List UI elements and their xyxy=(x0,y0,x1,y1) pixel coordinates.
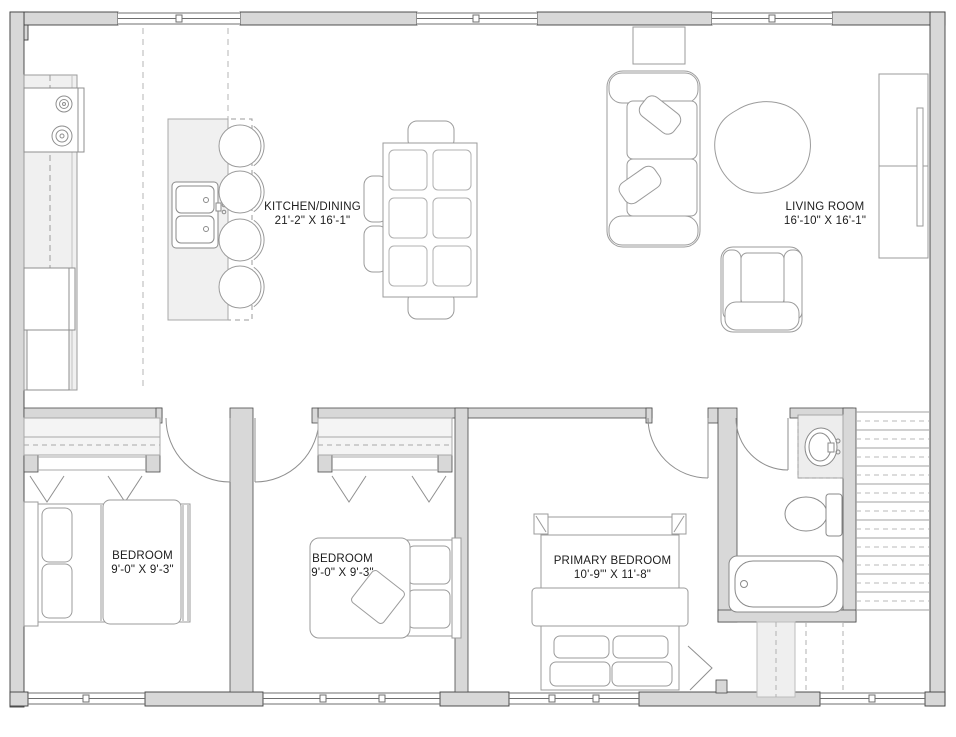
ottoman-icon xyxy=(715,102,811,193)
room-dimensions: 10'-9"' X 11'-8" xyxy=(535,568,690,582)
bathtub-icon xyxy=(729,556,843,612)
bathroom-door xyxy=(736,418,788,470)
toilet-icon xyxy=(785,494,842,536)
bedroom-2-door xyxy=(255,418,319,482)
room-dimensions: 21'-2" X 16'-1" xyxy=(240,214,385,228)
dining-table-icon xyxy=(383,143,477,297)
door-swings xyxy=(166,418,788,690)
floorplan-page: KITCHEN/DINING 21'-2" X 16'-1" LIVING RO… xyxy=(0,0,956,737)
primary-bedroom-door xyxy=(648,418,708,478)
armchair-icon xyxy=(721,247,802,332)
room-name: KITCHEN/DINING xyxy=(240,200,385,214)
room-name: PRIMARY BEDROOM xyxy=(535,554,690,568)
room-dimensions: 9'-0" X 9'-3" xyxy=(285,566,400,580)
sofa-icon xyxy=(607,71,700,247)
room-name: LIVING ROOM xyxy=(755,200,895,214)
room-label-living-room: LIVING ROOM 16'-10" X 16'-1" xyxy=(755,200,895,228)
side-table-icon xyxy=(633,27,685,64)
utility-chase xyxy=(757,622,843,697)
room-name: BEDROOM xyxy=(85,549,200,563)
stove-icon xyxy=(24,88,84,152)
room-label-bedroom-2: BEDROOM 9'-0" X 9'-3" xyxy=(285,552,400,580)
floorplan-drawing xyxy=(0,0,956,737)
tv-console-icon xyxy=(879,74,928,258)
refrigerator-icon xyxy=(24,268,75,390)
room-label-primary-bedroom: PRIMARY BEDROOM 10'-9"' X 11'-8" xyxy=(535,554,690,582)
room-dimensions: 9'-0" X 9'-3" xyxy=(85,563,200,577)
bathroom-vanity-icon xyxy=(798,415,843,478)
staircase xyxy=(856,412,929,610)
hall-closet-door xyxy=(688,646,712,690)
kitchen-sink-icon xyxy=(172,182,226,248)
room-label-kitchen-dining: KITCHEN/DINING 21'-2" X 16'-1" xyxy=(240,200,385,228)
room-dimensions: 16'-10" X 16'-1" xyxy=(755,214,895,228)
bed-icon xyxy=(532,514,688,690)
bedroom-1-door xyxy=(166,418,230,482)
room-name: BEDROOM xyxy=(285,552,400,566)
window xyxy=(118,12,832,25)
room-label-bedroom-1: BEDROOM 9'-0" X 9'-3" xyxy=(85,549,200,577)
